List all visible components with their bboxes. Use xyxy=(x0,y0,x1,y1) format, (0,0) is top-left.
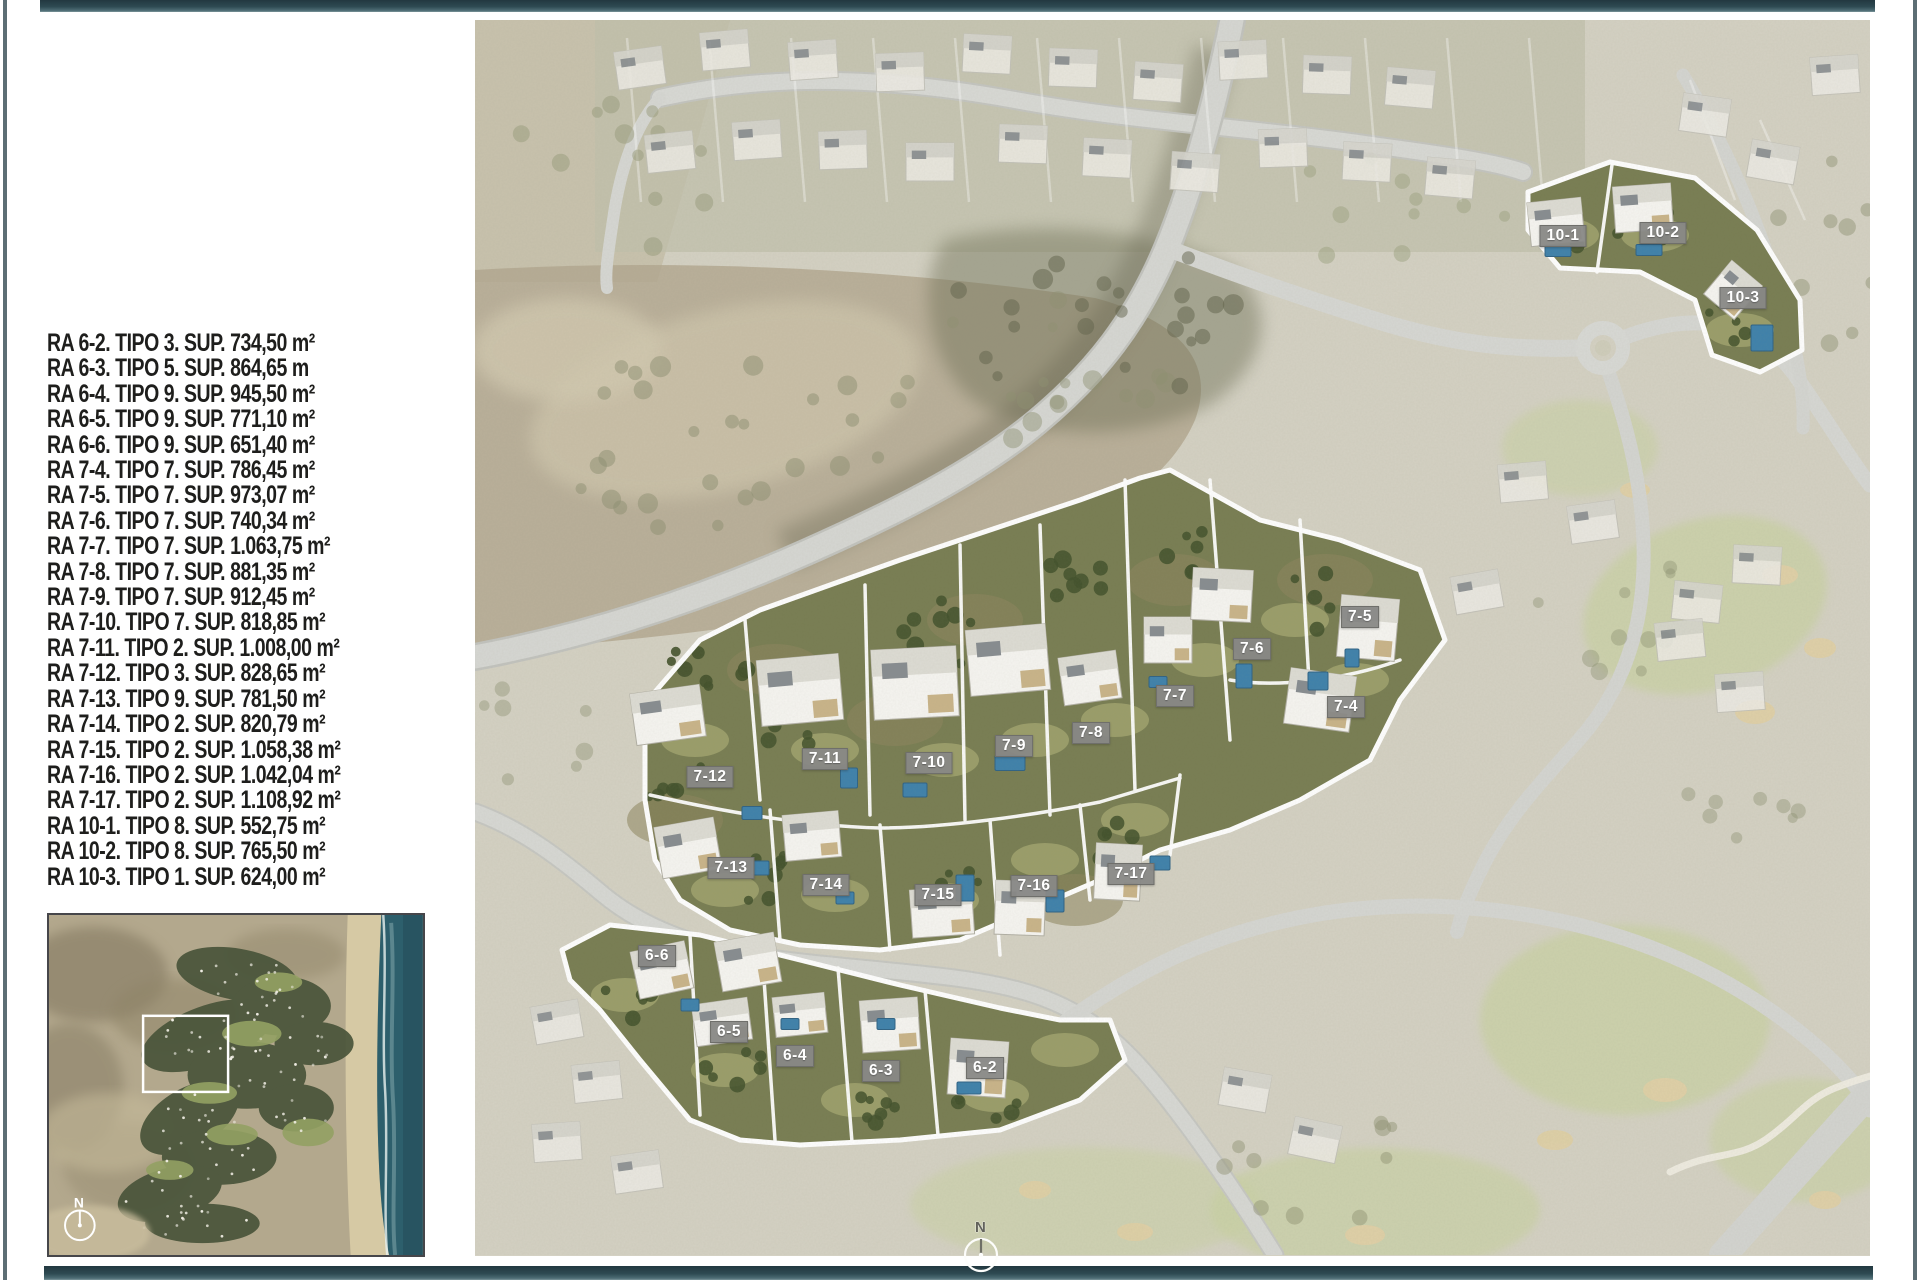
plot-label-6-4: 6-4 xyxy=(776,1045,814,1067)
plot-label-6-6: 6-6 xyxy=(638,945,676,967)
location-inset-map: N xyxy=(47,913,425,1257)
legend-item: RA 7-10. TIPO 7. SUP. 818,85 m² xyxy=(47,610,340,635)
plot-legend: RA 6-2. TIPO 3. SUP. 734,50 m²RA 6-3. TI… xyxy=(47,331,423,890)
legend-item: RA 6-3. TIPO 5. SUP. 864,65 m xyxy=(47,356,340,381)
plot-label-6-5: 6-5 xyxy=(710,1021,748,1043)
left-edge-line xyxy=(3,0,7,1280)
legend-item: RA 7-17. TIPO 2. SUP. 1.108,92 m² xyxy=(47,788,340,813)
masterplan-map: 10-110-210-37-57-67-77-47-87-97-107-117-… xyxy=(475,20,1870,1256)
legend-item: RA 6-4. TIPO 9. SUP. 945,50 m² xyxy=(47,382,340,407)
plot-label-10-2: 10-2 xyxy=(1639,222,1686,244)
plot-label-7-14: 7-14 xyxy=(802,874,849,896)
plot-label-7-15: 7-15 xyxy=(914,884,961,906)
legend-item: RA 10-3. TIPO 1. SUP. 624,00 m² xyxy=(47,865,340,890)
plot-label-7-13: 7-13 xyxy=(707,857,754,879)
legend-item: RA 7-6. TIPO 7. SUP. 740,34 m² xyxy=(47,509,340,534)
legend-item: RA 7-7. TIPO 7. SUP. 1.063,75 m² xyxy=(47,534,340,559)
legend-item: RA 6-2. TIPO 3. SUP. 734,50 m² xyxy=(47,331,340,356)
bottom-accent-bar xyxy=(44,1266,1873,1280)
legend-item: RA 7-5. TIPO 7. SUP. 973,07 m² xyxy=(47,483,340,508)
plot-label-7-10: 7-10 xyxy=(905,752,952,774)
map-artwork xyxy=(475,20,1870,1255)
plot-label-7-4: 7-4 xyxy=(1327,696,1365,718)
plot-label-7-9: 7-9 xyxy=(995,735,1033,757)
legend-item: RA 7-8. TIPO 7. SUP. 881,35 m² xyxy=(47,560,340,585)
legend-item: RA 7-14. TIPO 2. SUP. 820,79 m² xyxy=(47,712,340,737)
legend-item: RA 7-15. TIPO 2. SUP. 1.058,38 m² xyxy=(47,738,340,763)
map-north-label: N xyxy=(975,1219,986,1236)
inset-north-label: N xyxy=(74,1195,84,1211)
plot-label-7-16: 7-16 xyxy=(1010,875,1057,897)
plot-label-7-5: 7-5 xyxy=(1341,606,1379,628)
plot-label-6-2: 6-2 xyxy=(966,1057,1004,1079)
inset-aerial-art: N xyxy=(49,915,423,1255)
plot-label-10-3: 10-3 xyxy=(1719,287,1766,309)
plot-label-10-1: 10-1 xyxy=(1539,225,1586,247)
legend-item: RA 7-13. TIPO 9. SUP. 781,50 m² xyxy=(47,687,340,712)
legend-item: RA 7-4. TIPO 7. SUP. 786,45 m² xyxy=(47,458,340,483)
plot-label-7-6: 7-6 xyxy=(1233,638,1271,660)
legend-item: RA 10-2. TIPO 8. SUP. 765,50 m² xyxy=(47,839,340,864)
plot-label-6-3: 6-3 xyxy=(862,1060,900,1082)
legend-item: RA 10-1. TIPO 8. SUP. 552,75 m² xyxy=(47,814,340,839)
legend-item: RA 7-16. TIPO 2. SUP. 1.042,04 m² xyxy=(47,763,340,788)
legend-item: RA 6-5. TIPO 9. SUP. 771,10 m² xyxy=(47,407,340,432)
plot-label-7-17: 7-17 xyxy=(1107,863,1154,885)
legend-item: RA 7-12. TIPO 3. SUP. 828,65 m² xyxy=(47,661,340,686)
legend-item: RA 7-11. TIPO 2. SUP. 1.008,00 m² xyxy=(47,636,340,661)
plot-label-7-12: 7-12 xyxy=(686,766,733,788)
legend-item: RA 7-9. TIPO 7. SUP. 912,45 m² xyxy=(47,585,340,610)
top-accent-bar xyxy=(40,0,1875,12)
map-north-arrow: N xyxy=(961,1218,1001,1276)
plot-label-7-11: 7-11 xyxy=(802,748,848,770)
plot-label-7-7: 7-7 xyxy=(1156,685,1194,707)
legend-item: RA 6-6. TIPO 9. SUP. 651,40 m² xyxy=(47,433,340,458)
right-edge-line xyxy=(1913,0,1917,1280)
site-plan-page: RA 6-2. TIPO 3. SUP. 734,50 m²RA 6-3. TI… xyxy=(0,0,1920,1280)
plot-label-7-8: 7-8 xyxy=(1072,722,1110,744)
